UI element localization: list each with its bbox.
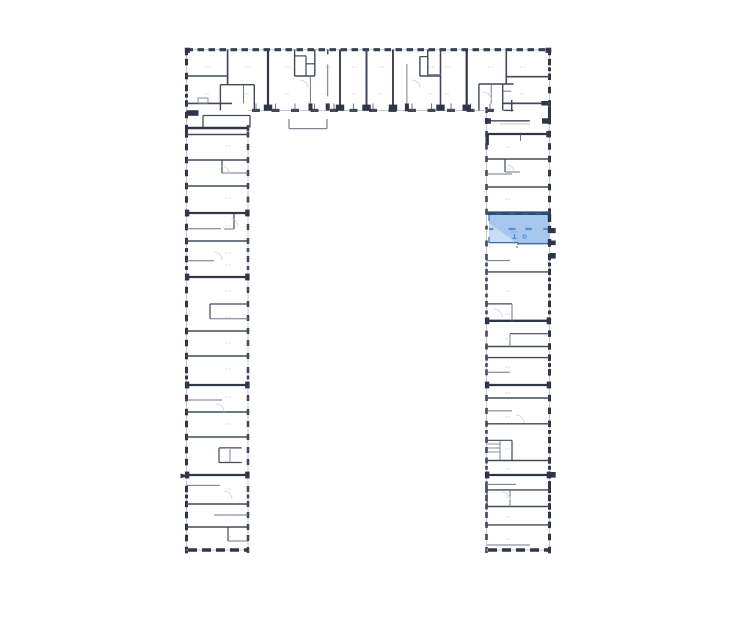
svg-text:16.4: 16.4 [505,537,511,541]
svg-text:17.8: 17.8 [225,289,231,293]
svg-text:17.8: 17.8 [488,65,494,69]
svg-text:16.4: 16.4 [505,197,511,201]
svg-text:5.2: 5.2 [285,92,289,96]
svg-text:17.8: 17.8 [225,144,231,148]
svg-text:17.8: 17.8 [205,65,211,69]
svg-text:17.8: 17.8 [225,487,231,491]
svg-text:16.4: 16.4 [505,312,511,316]
svg-text:17.8: 17.8 [378,65,384,69]
svg-text:5.2: 5.2 [378,92,382,96]
svg-text:16.4: 16.4 [505,391,511,395]
svg-text:16.4: 16.4 [505,467,511,471]
svg-text:17.8: 17.8 [225,422,231,426]
svg-text:5.2: 5.2 [205,92,209,96]
svg-text:17.8: 17.8 [428,65,434,69]
svg-text:17.8: 17.8 [225,447,231,451]
svg-text:17.8: 17.8 [520,65,526,69]
svg-text:17.8: 17.8 [225,224,231,228]
svg-text:5.2: 5.2 [352,92,356,96]
svg-text:16.4: 16.4 [505,145,511,149]
svg-text:17.8: 17.8 [352,65,358,69]
svg-text:5.2: 5.2 [445,92,449,96]
svg-text:17.8: 17.8 [225,395,231,399]
svg-text:16.4: 16.4 [505,415,511,419]
svg-text:16.4: 16.4 [505,337,511,341]
svg-text:17.8: 17.8 [225,513,231,517]
svg-text:17.8: 17.8 [225,315,231,319]
svg-text:17.8: 17.8 [285,65,291,69]
svg-text:24.8: 24.8 [511,230,517,234]
svg-text:5.2: 5.2 [245,92,249,96]
svg-text:16.4: 16.4 [505,289,511,293]
svg-text:17.8: 17.8 [225,367,231,371]
svg-text:16.4: 16.4 [505,257,511,261]
svg-text:17.8: 17.8 [225,170,231,174]
svg-text:17.8: 17.8 [225,251,231,255]
svg-text:17.8: 17.8 [225,535,231,539]
svg-text:16.4: 16.4 [505,167,511,171]
svg-text:5.2: 5.2 [428,92,432,96]
svg-text:5.2: 5.2 [520,92,524,96]
svg-text:5.2: 5.2 [325,92,329,96]
svg-text:17.8: 17.8 [225,459,231,463]
svg-text:17.8: 17.8 [225,341,231,345]
svg-text:16.4: 16.4 [505,515,511,519]
svg-text:17.8: 17.8 [225,196,231,200]
svg-text:17.8: 17.8 [225,263,231,267]
svg-text:16.4: 16.4 [505,447,511,451]
svg-text:17.8: 17.8 [245,65,251,69]
svg-text:16.4: 16.4 [505,365,511,369]
svg-text:17.8: 17.8 [445,65,451,69]
